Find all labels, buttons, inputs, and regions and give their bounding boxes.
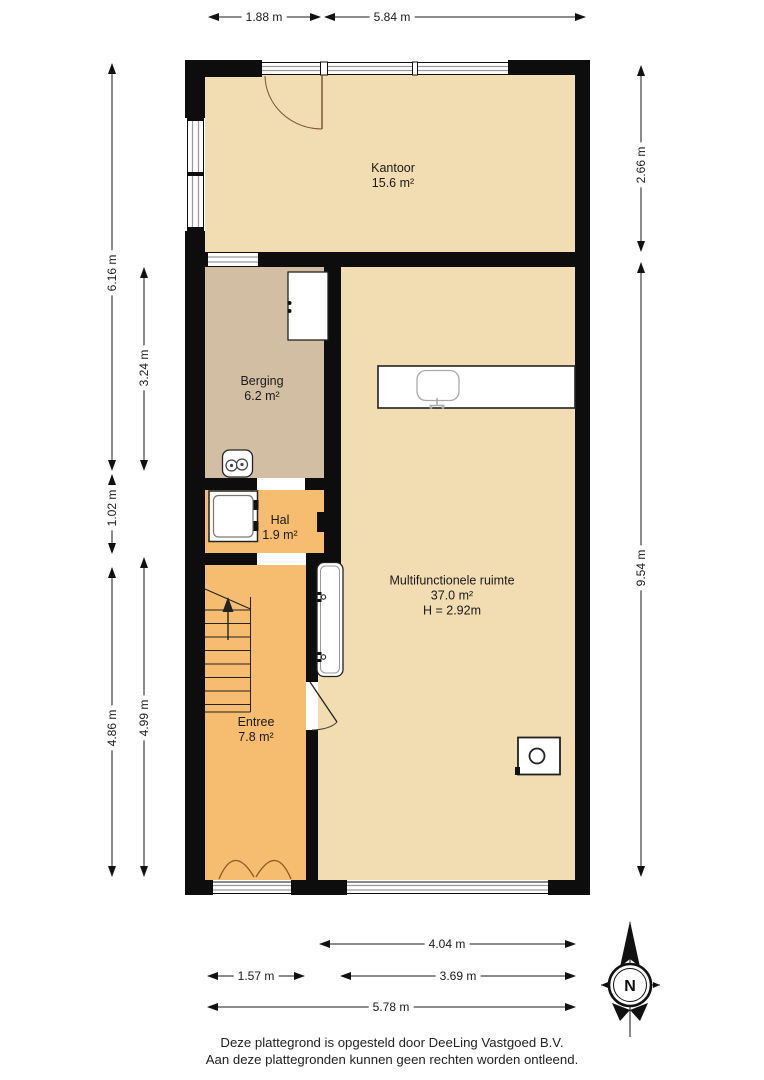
entry-threshold — [213, 881, 291, 894]
room-name: Multifunctionele ruimte — [389, 574, 514, 589]
room-name: Entree — [238, 715, 275, 730]
footer-line-2: Aan deze plattegronden kunnen geen recht… — [206, 1051, 578, 1068]
sink-counter — [378, 366, 575, 409]
room-name: Hal — [262, 513, 297, 528]
floorplan-page: N Kantoor 15.6 m² Berging 6.2 m² Hal 1.9… — [0, 0, 764, 1080]
dim-left-1: 6.16 m — [105, 251, 119, 296]
dim-right-2: 9.54 m — [634, 546, 648, 591]
dim-left-3: 1.02 m — [105, 486, 119, 531]
window-bottom — [347, 881, 548, 894]
dim-top-2: 5.84 m — [370, 10, 415, 24]
dim-right-1: 2.66 m — [634, 143, 648, 188]
room-area: 6.2 m² — [240, 389, 283, 404]
dim-left-2: 3.24 m — [137, 346, 151, 391]
dim-top-1: 1.88 m — [242, 10, 287, 24]
room-name: Berging — [240, 374, 283, 389]
room-label-kantoor: Kantoor 15.6 m² — [371, 161, 415, 191]
compass-north-label: N — [624, 978, 636, 995]
window-berging — [208, 252, 258, 267]
dim-bottom-1: 4.04 m — [425, 937, 470, 951]
dim-bottom-2: 1.57 m — [234, 969, 279, 983]
kitchenette-unit — [317, 563, 343, 677]
room-label-multifunctionele-ruimte: Multifunctionele ruimte 37.0 m² H = 2.92… — [389, 574, 514, 619]
room-label-entree: Entree 7.8 m² — [238, 715, 275, 745]
room-label-hal: Hal 1.9 m² — [262, 513, 297, 543]
window-left — [187, 117, 204, 231]
room-label-berging: Berging 6.2 m² — [240, 374, 283, 404]
window-top — [262, 62, 508, 75]
compass-rose: N — [601, 921, 660, 1037]
storage-cabinet — [288, 272, 329, 340]
room-area: 1.9 m² — [262, 528, 297, 543]
dim-left-5: 4.99 m — [137, 696, 151, 741]
dim-left-4: 4.86 m — [105, 706, 119, 751]
room-height: H = 2.92m — [389, 604, 514, 619]
room-area: 7.8 m² — [238, 730, 275, 745]
boiler-icon — [223, 450, 253, 477]
footer-line-1: Deze plattegrond is opgesteld door DeeLi… — [206, 1034, 578, 1051]
dim-bottom-4: 5.78 m — [369, 1000, 414, 1014]
footer-disclaimer: Deze plattegrond is opgesteld door DeeLi… — [206, 1034, 578, 1068]
room-area: 15.6 m² — [371, 176, 415, 191]
dim-bottom-3: 3.69 m — [436, 969, 481, 983]
room-name: Kantoor — [371, 161, 415, 176]
stove-icon — [515, 738, 560, 776]
shower-tray — [209, 491, 259, 542]
room-area: 37.0 m² — [389, 589, 514, 604]
